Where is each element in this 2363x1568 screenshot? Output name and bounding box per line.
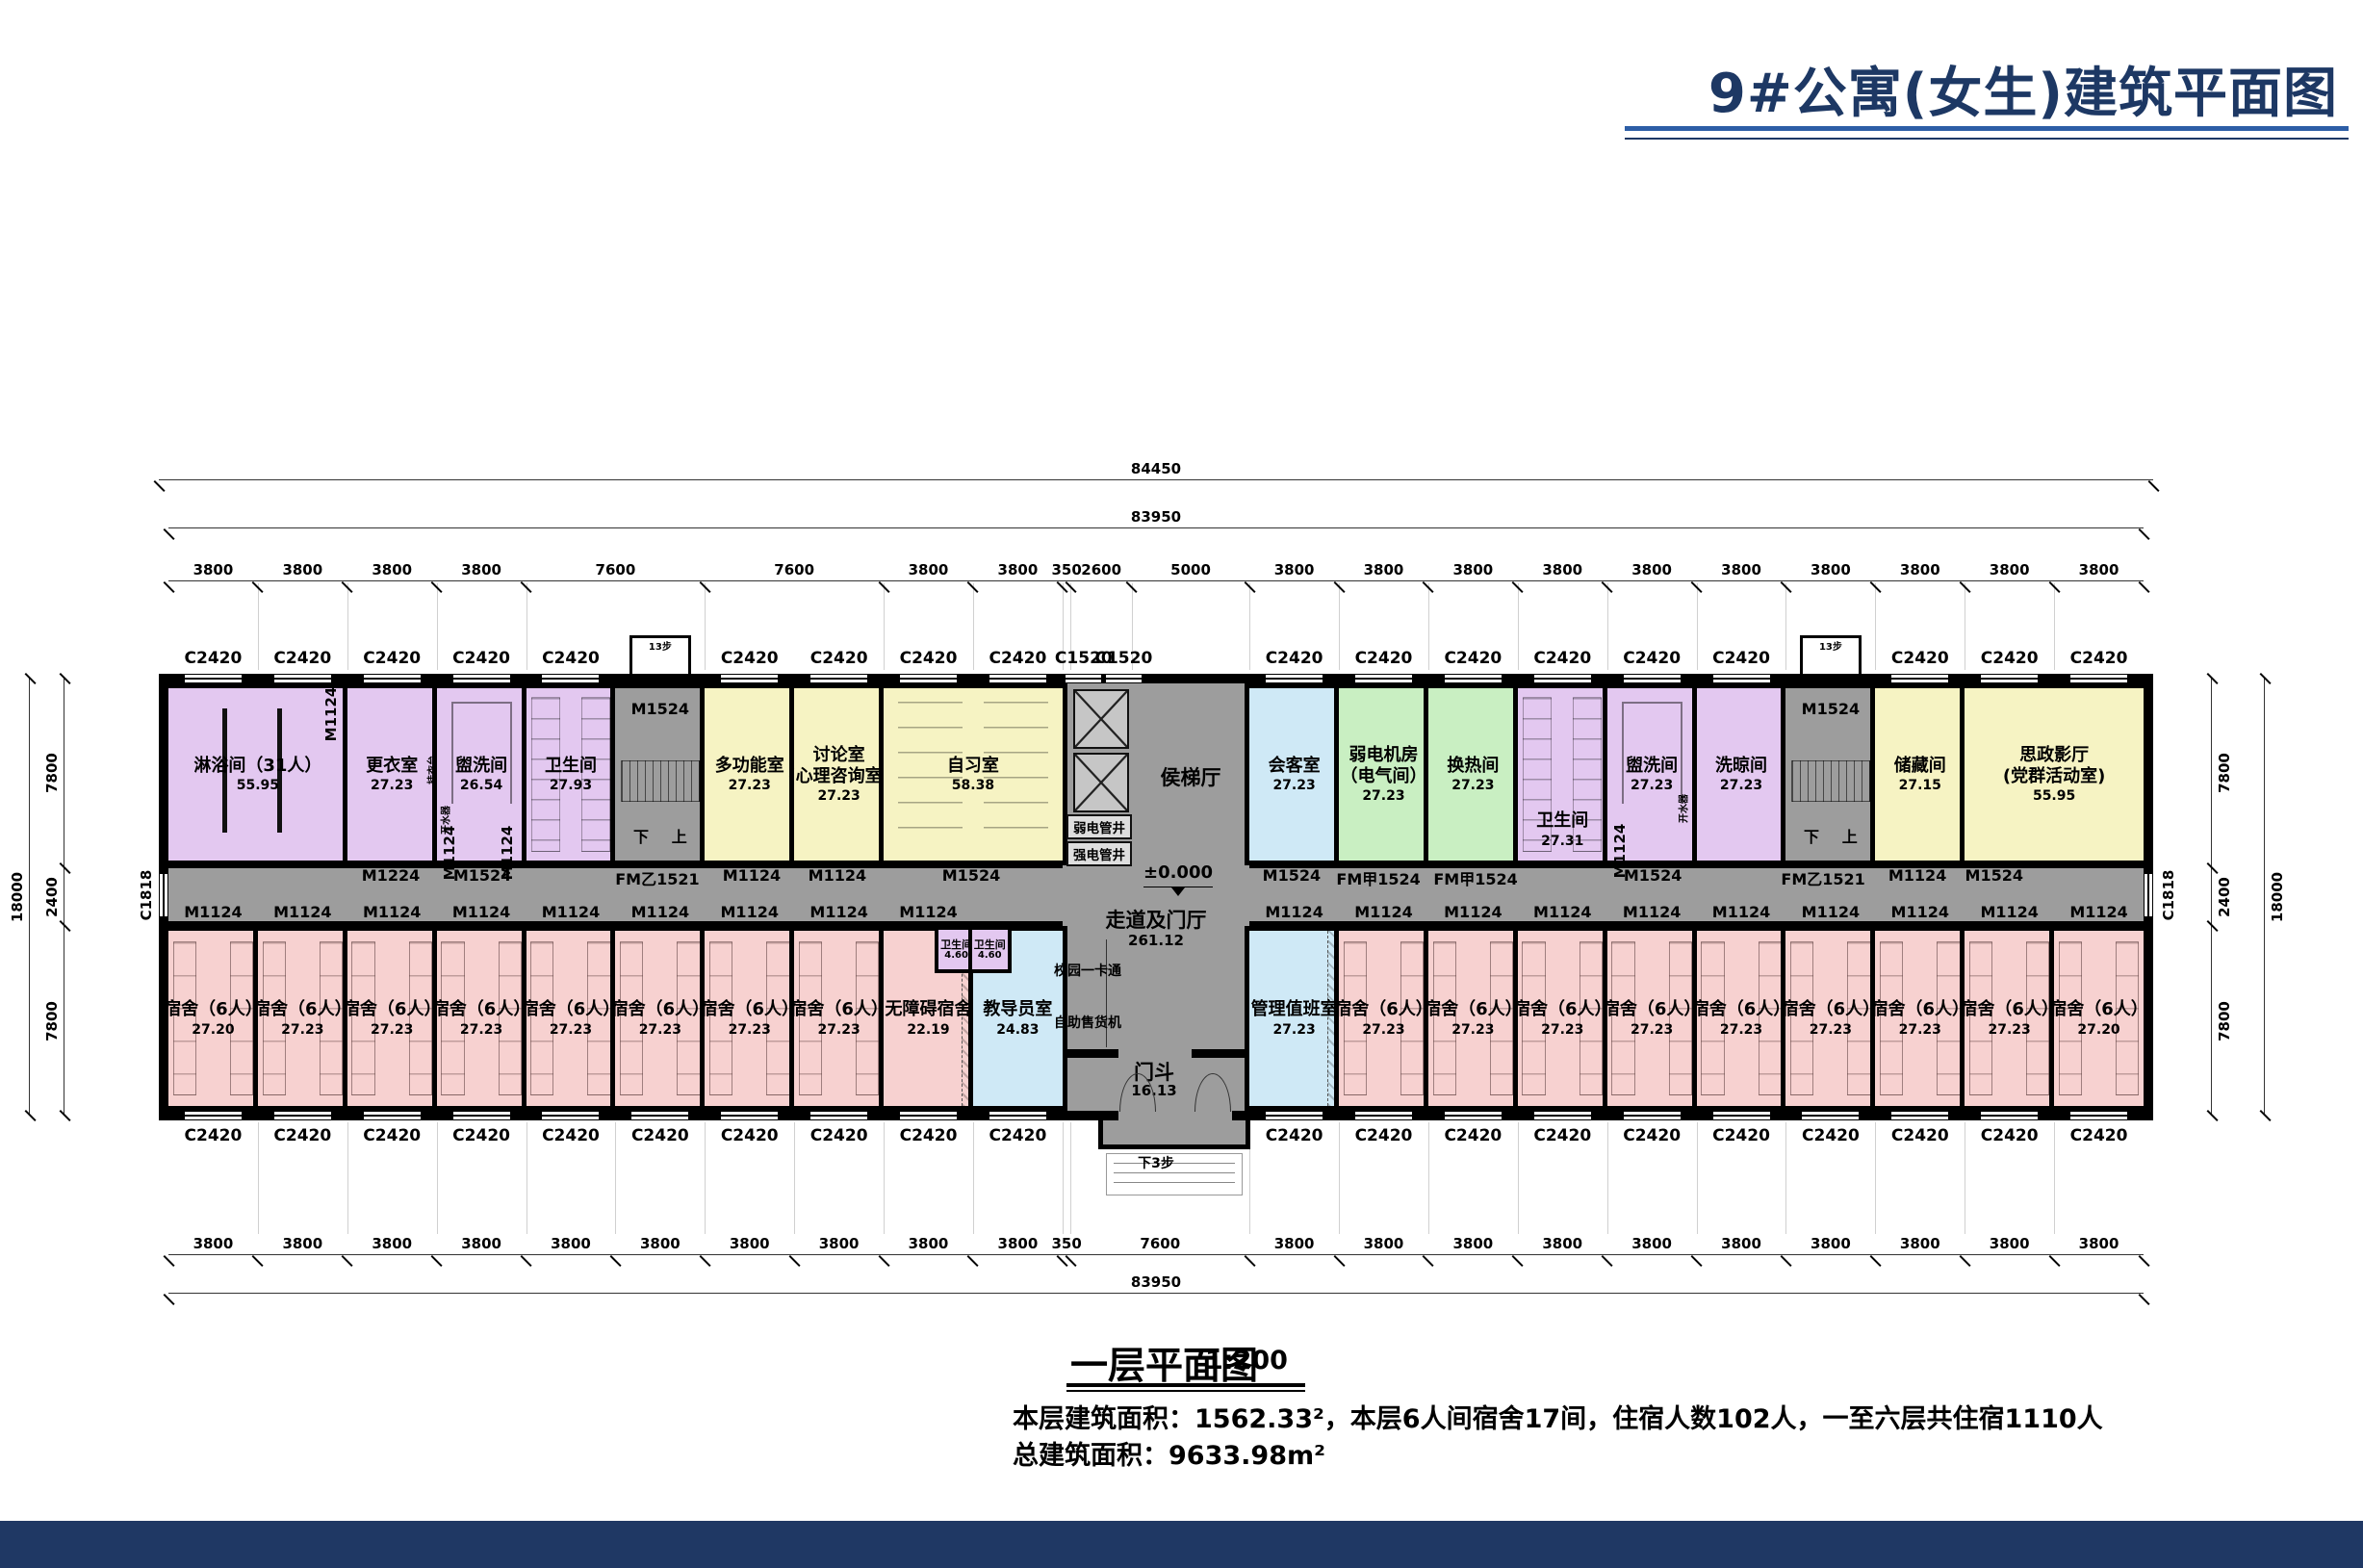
fixture-label: 挂衣台	[424, 756, 438, 784]
room-area: 27.23	[1603, 1022, 1702, 1038]
dim-tick	[2048, 1255, 2060, 1267]
window-label: C2420	[1355, 649, 1413, 668]
room-area: 27.15	[1894, 778, 1946, 793]
extension-line	[2054, 1122, 2055, 1234]
window-glyph	[453, 1111, 510, 1120]
dim-label: 3800	[909, 1235, 949, 1252]
door-tag: M1124	[1712, 903, 1770, 921]
entrance-opening	[1118, 1111, 1232, 1120]
stair-treads	[621, 760, 700, 802]
room-dorm-3: 宿舍（6人）27.23	[343, 926, 442, 1111]
door-tag: FM甲1524	[1433, 866, 1517, 889]
window-label: C2420	[1981, 1126, 2039, 1145]
room-area: 27.23	[343, 1022, 442, 1038]
dim-label: 18000	[9, 872, 26, 922]
door-tag: M1124	[1802, 903, 1860, 921]
dim-label: 3800	[282, 1235, 322, 1252]
dim-top-overall: 84450	[159, 463, 2153, 480]
window-label: C2420	[452, 1126, 510, 1145]
extension-line	[615, 1122, 616, 1234]
room-accessible-dorm: 无障碍宿舍22.19卫生间4.60	[879, 926, 978, 1111]
room-label: 宿舍（6人）27.20	[2049, 999, 2148, 1038]
extension-line	[1518, 1122, 1519, 1234]
window-glyph	[185, 674, 242, 683]
window-glyph	[1066, 674, 1101, 683]
room-name: 储藏间	[1894, 756, 1946, 777]
room-name: 宿舍（6人）	[1513, 999, 1612, 1020]
window-glyph	[1445, 674, 1502, 683]
dim-label: 3800	[1721, 1235, 1761, 1252]
vending-machine-label: 自助售货机	[1054, 1013, 1121, 1032]
room-label: 洗晾间27.23	[1715, 756, 1767, 794]
room-label: 宿舍（6人）27.23	[1334, 999, 1433, 1038]
dim-tick	[2206, 673, 2218, 684]
extension-line	[794, 1122, 795, 1234]
window-glyph	[721, 674, 778, 683]
dim-tick	[2206, 920, 2218, 932]
window-label: C1818	[138, 870, 155, 921]
room-name: 卫生间	[1536, 810, 1588, 832]
dim-label: 7800	[43, 753, 61, 793]
dim-label: 3800	[2079, 1235, 2119, 1252]
stair-steps-label: 13步	[1819, 638, 1842, 653]
dim-tick	[2138, 528, 2149, 540]
window-glyph	[810, 1111, 867, 1120]
window-label: C2420	[810, 649, 868, 668]
wc-area: 4.60	[978, 951, 1002, 961]
room-name: 宿舍（6人）	[522, 999, 621, 1020]
dim-label: 3800	[819, 1235, 860, 1252]
window-glyph	[159, 874, 168, 916]
room-area: 27.20	[2049, 1022, 2148, 1038]
window-glyph	[1713, 674, 1770, 683]
dim-left-segments: 780024007800	[64, 679, 64, 1116]
dim-label: 7600	[596, 561, 636, 578]
window-label: C2420	[1891, 649, 1949, 668]
room-name: 宿舍（6人）	[1424, 999, 1523, 1020]
dim-label: 3800	[193, 561, 234, 578]
door-tag: M1124	[1444, 903, 1502, 921]
extension-line	[705, 583, 706, 670]
window-label: C1818	[2160, 870, 2177, 921]
extension-line	[1607, 1122, 1608, 1234]
room-name: 宿舍（6人）	[164, 999, 263, 1020]
dim-label: 2600	[1081, 561, 1121, 578]
room-toilet-east: 卫生间27.31	[1513, 683, 1612, 865]
room-name: 洗晾间	[1715, 756, 1767, 777]
window-label: C2420	[1712, 649, 1770, 668]
window-label: C1520	[1094, 649, 1152, 668]
room-name-2: （电气间）	[1340, 766, 1426, 787]
window-glyph	[1624, 674, 1681, 683]
dim-label: 84450	[1131, 460, 1181, 477]
room-dorm-17: 宿舍（6人）27.20	[2049, 926, 2148, 1111]
extension-line	[1339, 1122, 1340, 1234]
room-name: 宿舍（6人）	[2049, 999, 2148, 1020]
stair-up-label: 上	[1842, 824, 1858, 847]
door-tag: M1124	[363, 903, 421, 921]
door-tag-rotated: M1124	[1611, 824, 1629, 879]
room-label: 宿舍（6人）27.23	[522, 999, 621, 1038]
note-total-area: 总建筑面积：9633.98m²	[1013, 1434, 1325, 1472]
dim-label: 3800	[1452, 561, 1493, 578]
vestibule-wall	[1192, 1049, 1247, 1058]
dim-tick	[59, 862, 70, 874]
room-label: 卫生间27.31	[1536, 810, 1588, 849]
door-tag: FM乙1521	[1781, 866, 1864, 889]
window-glyph	[1534, 674, 1591, 683]
room-name: 讨论室	[787, 745, 889, 766]
dim-label: 83950	[1131, 1273, 1181, 1291]
room-label: 宿舍（6人）27.20	[164, 999, 263, 1038]
room-name: 宿舍（6人）	[432, 999, 531, 1020]
window-label: C2420	[273, 1126, 331, 1145]
stair-door-label: M1524	[615, 700, 705, 718]
vestibule-wall	[1063, 1049, 1118, 1058]
dim-tick	[163, 581, 174, 593]
window-glyph	[453, 674, 510, 683]
window-label: C2420	[2070, 649, 2128, 668]
window-glyph	[1981, 674, 2038, 683]
window-glyph	[631, 1111, 688, 1120]
strong-power-shaft: 强电管井	[1066, 841, 1132, 866]
window-label: C2420	[363, 1126, 421, 1145]
window-glyph	[542, 1111, 599, 1120]
door-tag: M1124	[1533, 903, 1591, 921]
extension-line	[2054, 583, 2055, 670]
room-name-2: (党群活动室)	[2003, 766, 2105, 787]
extension-line	[1070, 1122, 1071, 1234]
window-glyph	[810, 674, 867, 683]
room-dorm-11: 宿舍（6人）27.23	[1513, 926, 1612, 1111]
dim-top-segments: 3800380038003800760076003800380035026005…	[168, 564, 2144, 581]
room-label: 宿舍（6人）27.23	[253, 999, 352, 1038]
room-dorm-15: 宿舍（6人）27.23	[1870, 926, 1969, 1111]
room-area: 27.23	[366, 778, 418, 793]
window-label: C2420	[1355, 1126, 1413, 1145]
room-name: 宿舍（6人）	[1334, 999, 1433, 1020]
room-dorm-10: 宿舍（6人）27.23	[1424, 926, 1523, 1111]
level-symbol	[1143, 887, 1213, 887]
dim-tick	[1423, 1255, 1434, 1267]
window-glyph	[542, 674, 599, 683]
window-label: C2420	[1444, 1126, 1502, 1145]
dim-tick	[1959, 1255, 1970, 1267]
dim-tick	[163, 1255, 174, 1267]
dim-label: 3800	[1990, 1235, 2030, 1252]
room-name: 会客室	[1269, 756, 1321, 777]
dim-tick	[1691, 1255, 1703, 1267]
room-area: 26.54	[455, 778, 507, 793]
dim-label: 3800	[461, 1235, 501, 1252]
window-label: C2420	[2070, 1126, 2128, 1145]
room-name: 思政影厅	[2003, 745, 2105, 766]
room-label: 宿舍（6人）27.23	[789, 999, 888, 1038]
room-label: 无障碍宿舍22.19	[886, 999, 972, 1038]
dim-tick	[163, 1294, 174, 1305]
room-name: 管理值班室	[1251, 999, 1338, 1020]
room-name: 更衣室	[366, 756, 418, 777]
entrance-steps-label: 下3步	[1138, 1153, 1174, 1172]
dim-label: 2400	[43, 877, 61, 917]
room-label: 宿舍（6人）27.23	[700, 999, 799, 1038]
room-dorm-2: 宿舍（6人）27.23	[253, 926, 352, 1111]
dim-tick	[1780, 1255, 1791, 1267]
dim-label: 5000	[1170, 561, 1211, 578]
window-label: C2420	[721, 1126, 779, 1145]
dim-label: 3800	[1900, 1235, 1940, 1252]
door-tag: M1124	[723, 866, 781, 885]
dim-label: 3800	[282, 561, 322, 578]
door-tag: M1124	[1265, 903, 1323, 921]
window-glyph	[2070, 674, 2127, 683]
room-label: 宿舍（6人）27.23	[1424, 999, 1523, 1038]
window-label: C2420	[1802, 1126, 1860, 1145]
dim-label: 3800	[1811, 561, 1851, 578]
extension-line	[1965, 1122, 1965, 1234]
door-tag: M1124	[184, 903, 242, 921]
campus-card-label: 校园一卡通	[1054, 961, 1121, 980]
extension-line	[973, 583, 974, 670]
room-label: 讨论室(心理咨询室)27.23	[787, 745, 889, 804]
dim-tick	[342, 1255, 353, 1267]
room-name: 无障碍宿舍	[886, 999, 972, 1020]
dim-label: 3800	[1990, 561, 2030, 578]
caption-underline-thick	[1066, 1383, 1305, 1387]
dim-label: 7800	[2216, 1001, 2233, 1041]
corridor-hall-area: 261.12	[1128, 932, 1184, 949]
room-label: 宿舍（6人）27.23	[1871, 999, 1970, 1038]
room-dorm-13: 宿舍（6人）27.23	[1692, 926, 1791, 1111]
window-glyph	[2144, 874, 2153, 916]
extension-line	[1339, 583, 1340, 670]
room-name-2: (心理咨询室)	[787, 766, 889, 787]
room-area: 27.23	[700, 1022, 799, 1038]
dim-label: 3800	[1631, 1235, 1672, 1252]
dim-tick	[2259, 673, 2271, 684]
door-tag-rotated: M1124	[499, 826, 516, 881]
window-label: C2420	[989, 1126, 1046, 1145]
window-label: C2420	[1444, 649, 1502, 668]
door-tag: FM甲1524	[1336, 866, 1420, 889]
extension-line	[437, 583, 438, 670]
dim-label: 3800	[730, 1235, 770, 1252]
room-area: 58.38	[947, 778, 999, 793]
door-tag: M1124	[273, 903, 331, 921]
window-glyph	[1266, 674, 1323, 683]
dim-label: 3800	[909, 561, 949, 578]
dim-label: 3800	[998, 561, 1039, 578]
room-name: 盥洗间	[1626, 756, 1678, 777]
room-label: 卫生间27.93	[545, 756, 597, 794]
dim-tick	[699, 1255, 710, 1267]
wc-area: 4.60	[944, 951, 968, 961]
dim-label: 350	[1051, 1235, 1081, 1252]
dim-label: 3800	[1811, 1235, 1851, 1252]
room-name: 宿舍（6人）	[1960, 999, 2059, 1020]
elevator-hall-label: 侯梯厅	[1161, 762, 1221, 791]
room-label: 教导员室24.83	[983, 999, 1052, 1038]
dim-label: 83950	[1131, 508, 1181, 526]
dim-left-overall: 18000	[29, 679, 30, 1116]
window-glyph	[1266, 1111, 1323, 1120]
room-label: 盥洗间26.54	[455, 756, 507, 794]
dim-label: 7800	[43, 1001, 61, 1041]
dim-tick	[2138, 1294, 2149, 1305]
dim-tick	[2147, 480, 2159, 492]
extension-line	[1518, 583, 1519, 670]
fixture-label: 开水器	[438, 806, 452, 835]
window-glyph	[364, 1111, 421, 1120]
dim-tick	[153, 480, 165, 492]
room-label: 宿舍（6人）27.23	[1960, 999, 2059, 1038]
dim-label: 3800	[1364, 561, 1404, 578]
extension-line	[1428, 583, 1429, 670]
room-area: 24.83	[983, 1022, 1052, 1038]
dim-tick	[24, 1110, 36, 1121]
dim-label: 7800	[2216, 753, 2233, 793]
extension-line	[1785, 583, 1786, 670]
dim-tick	[2138, 581, 2149, 593]
dim-tick	[1512, 1255, 1524, 1267]
room-area: 27.23	[1626, 778, 1678, 793]
extension-line	[1875, 1122, 1876, 1234]
room-duty-room: 管理值班室27.23	[1245, 926, 1344, 1111]
dim-tick	[609, 1255, 621, 1267]
page: 9#公寓(女生)建筑平面图 淋浴间（31人）55.95更衣室27.23盥洗间26…	[0, 0, 2363, 1568]
extension-line	[1063, 1122, 1064, 1234]
door-tag: M1124	[1623, 903, 1681, 921]
dim-label: 3800	[998, 1235, 1039, 1252]
extension-line	[527, 1122, 527, 1234]
room-name: 弱电机房	[1340, 745, 1426, 766]
dim-tick	[2138, 1255, 2149, 1267]
room-dorm-16: 宿舍（6人）27.23	[1960, 926, 2059, 1111]
dim-label: 3800	[1274, 561, 1315, 578]
room-reception-room: 会客室27.23	[1245, 683, 1344, 865]
room-label: 储藏间27.15	[1894, 756, 1946, 794]
window-glyph	[1802, 1111, 1859, 1120]
room-label: 思政影厅(党群活动室)55.95	[2003, 745, 2105, 804]
extension-line	[1965, 583, 1965, 670]
dim-label: 7600	[1140, 1235, 1180, 1252]
door-tag: M1124	[809, 866, 866, 885]
dim-tick	[878, 1255, 889, 1267]
room-stairwell-east: M1524下上	[1781, 683, 1880, 865]
room-discussion-room: 讨论室(心理咨询室)27.23	[789, 683, 888, 865]
room-multi-function-room: 多功能室27.23	[700, 683, 799, 865]
room-area: 27.23	[715, 778, 784, 793]
window-glyph	[274, 1111, 331, 1120]
dim-label: 3800	[372, 1235, 412, 1252]
note-floor-area: 本层建筑面积：1562.33²，本层6人间宿舍17间，住宿人数102人，一至六层…	[1013, 1398, 2103, 1435]
window-glyph	[185, 1111, 242, 1120]
room-label: 淋浴间（31人）55.95	[193, 756, 321, 794]
dim-tick	[1602, 1255, 1613, 1267]
extension-line	[527, 583, 527, 670]
window-glyph	[274, 674, 331, 683]
dim-label: 3800	[461, 561, 501, 578]
stair-down-label: 下	[1804, 824, 1819, 847]
room-name: 宿舍（6人）	[789, 999, 888, 1020]
room-name: 多功能室	[715, 756, 784, 777]
extension-line	[1875, 583, 1876, 670]
dim-label: 2400	[2216, 877, 2233, 917]
dim-tick	[163, 528, 174, 540]
door-tag: M1124	[809, 903, 867, 921]
dim-tick	[252, 1255, 264, 1267]
room-area: 55.95	[193, 778, 321, 793]
extension-line	[437, 1122, 438, 1234]
extension-line	[1697, 583, 1698, 670]
dim-tick	[788, 1255, 800, 1267]
window-glyph	[989, 674, 1046, 683]
stair-up-label: 上	[672, 824, 687, 847]
window-label: C2420	[1266, 1126, 1323, 1145]
room-area: 27.23	[1513, 1022, 1612, 1038]
door-tag: M1524	[1965, 866, 2023, 885]
drawing-scale: 1:200	[1205, 1346, 1288, 1375]
dim-label: 3800	[1452, 1235, 1493, 1252]
dim-tick	[967, 1255, 979, 1267]
window-label: C2420	[1891, 1126, 1949, 1145]
entrance-step	[1114, 1182, 1235, 1183]
dim-tick	[1333, 1255, 1345, 1267]
bottom-bar	[0, 1521, 2363, 1568]
dim-tick	[2206, 1110, 2218, 1121]
window-glyph	[1891, 1111, 1948, 1120]
extension-line	[1607, 583, 1608, 670]
extension-line	[884, 583, 885, 670]
room-label: 多功能室27.23	[715, 756, 784, 794]
window-glyph	[2070, 1111, 2127, 1120]
room-name: 宿舍（6人）	[1603, 999, 1702, 1020]
room-area: 27.23	[1960, 1022, 2059, 1038]
room-label: 宿舍（6人）27.23	[611, 999, 710, 1038]
room-area: 27.23	[789, 1022, 888, 1038]
dim-label: 3800	[1631, 561, 1672, 578]
dim-label: 3800	[1542, 1235, 1582, 1252]
dim-label: 3800	[1542, 561, 1582, 578]
room-name: 换热间	[1447, 756, 1499, 777]
room-name: 卫生间	[545, 756, 597, 777]
door-tag: M1124	[721, 903, 779, 921]
window-label: C2420	[1623, 649, 1681, 668]
room-area: 27.23	[1692, 1022, 1791, 1038]
room-area: 27.31	[1536, 834, 1588, 849]
extension-line	[1249, 583, 1250, 670]
level-mark: ±0.000	[1143, 862, 1213, 883]
window-label: C2420	[721, 649, 779, 668]
room-label: 弱电机房（电气间）27.23	[1340, 745, 1426, 804]
room-label: 自习室58.38	[947, 756, 999, 794]
room-dorm-8: 宿舍（6人）27.23	[789, 926, 888, 1111]
extension-line	[258, 583, 259, 670]
room-label: 宿舍（6人）27.23	[1513, 999, 1612, 1038]
extension-line	[973, 1122, 974, 1234]
room-label: 管理值班室27.23	[1251, 999, 1338, 1038]
dim-tick	[431, 1255, 443, 1267]
extension-line	[1785, 1122, 1786, 1234]
entrance-step	[1114, 1172, 1235, 1173]
room-label: 宿舍（6人）27.23	[1603, 999, 1702, 1038]
extension-line	[1428, 1122, 1429, 1234]
window-label: C2420	[273, 649, 331, 668]
dim-right-segments: 780024007800	[2211, 679, 2212, 1116]
floor-plan: 淋浴间（31人）55.95更衣室27.23盥洗间26.54卫生间27.93M15…	[0, 0, 2363, 1568]
window-glyph	[989, 1111, 1046, 1120]
window-label: C2420	[452, 649, 510, 668]
